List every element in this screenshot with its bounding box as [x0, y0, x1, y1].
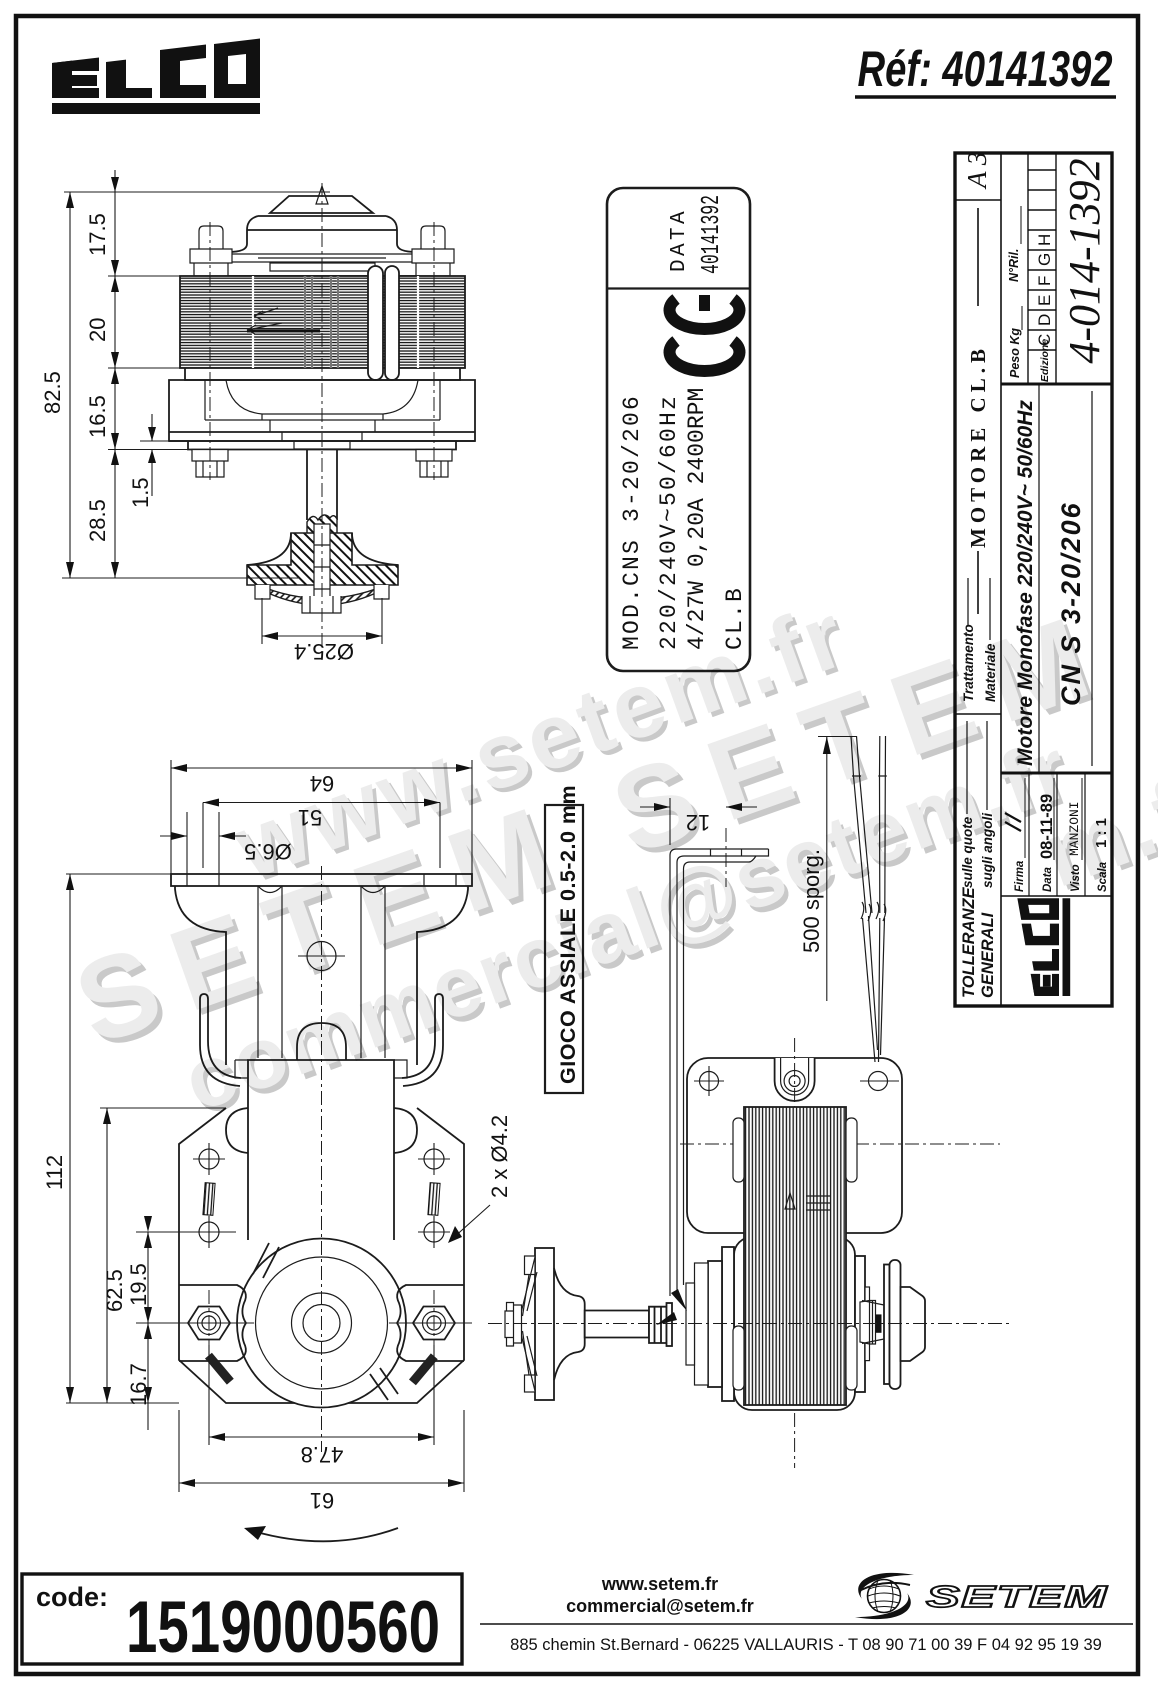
svg-text:E: E: [1035, 295, 1054, 306]
svg-text:G: G: [1035, 253, 1054, 266]
svg-text:16.7: 16.7: [126, 1363, 151, 1406]
svg-text:Peso Kg: Peso Kg: [1008, 328, 1022, 378]
svg-text:885 chemin St.Bernard - 0622: 885 chemin St.Bernard - 06225 VALLAURIS …: [510, 1636, 1102, 1654]
svg-text:62.5: 62.5: [102, 1269, 127, 1312]
svg-text:47.8: 47.8: [301, 1442, 344, 1467]
svg-text:C: C: [1035, 334, 1054, 346]
svg-text:1519000560: 1519000560: [126, 1587, 440, 1668]
svg-text:H: H: [1035, 234, 1054, 246]
svg-text:112: 112: [42, 1155, 67, 1190]
svg-text:TOLLERANZE: TOLLERANZE: [960, 886, 978, 998]
svg-text:4/27W 0,20A 2400RPM: 4/27W 0,20A 2400RPM: [684, 388, 710, 650]
svg-text:40141392: 40141392: [696, 195, 726, 274]
svg-text:20: 20: [85, 318, 110, 342]
svg-text:61: 61: [310, 1488, 334, 1513]
svg-text:GENERALI: GENERALI: [979, 912, 997, 998]
svg-text:17.5: 17.5: [85, 213, 110, 256]
svg-text:D: D: [1035, 314, 1054, 326]
svg-text:code:: code:: [36, 1582, 108, 1612]
svg-text:www.setem.fr: www.setem.fr: [601, 1574, 718, 1594]
svg-text:DATA: DATA: [668, 208, 691, 272]
svg-text:19.5: 19.5: [126, 1263, 151, 1306]
svg-text:1.5: 1.5: [128, 477, 153, 508]
svg-text:Réf: 40141392: Réf: 40141392: [858, 41, 1113, 97]
svg-text:A 3: A 3: [962, 152, 992, 190]
svg-text:220/240V~50/60Hz: 220/240V~50/60Hz: [656, 394, 682, 650]
svg-text:N°Ril.: N°Ril.: [1007, 249, 1021, 282]
svg-text:MOTORE CL.B: MOTORE CL.B: [966, 344, 990, 548]
svg-text:MOD.CNS 3-20/206: MOD.CNS 3-20/206: [619, 394, 645, 650]
svg-text:28.5: 28.5: [85, 499, 110, 542]
svg-text:SETEM: SETEM: [926, 1579, 1108, 1614]
svg-text:2 x Ø4.2: 2 x Ø4.2: [487, 1115, 512, 1198]
svg-text:4-014-1392: 4-014-1392: [1060, 158, 1109, 363]
svg-text:Ø25.4: Ø25.4: [294, 639, 354, 664]
svg-text:commercial@setem.fr: commercial@setem.fr: [566, 1596, 754, 1616]
svg-text:Firma: Firma: [1014, 860, 1026, 892]
svg-text:16.5: 16.5: [85, 395, 110, 438]
svg-text:F: F: [1035, 276, 1054, 286]
svg-text:82.5: 82.5: [40, 371, 65, 414]
